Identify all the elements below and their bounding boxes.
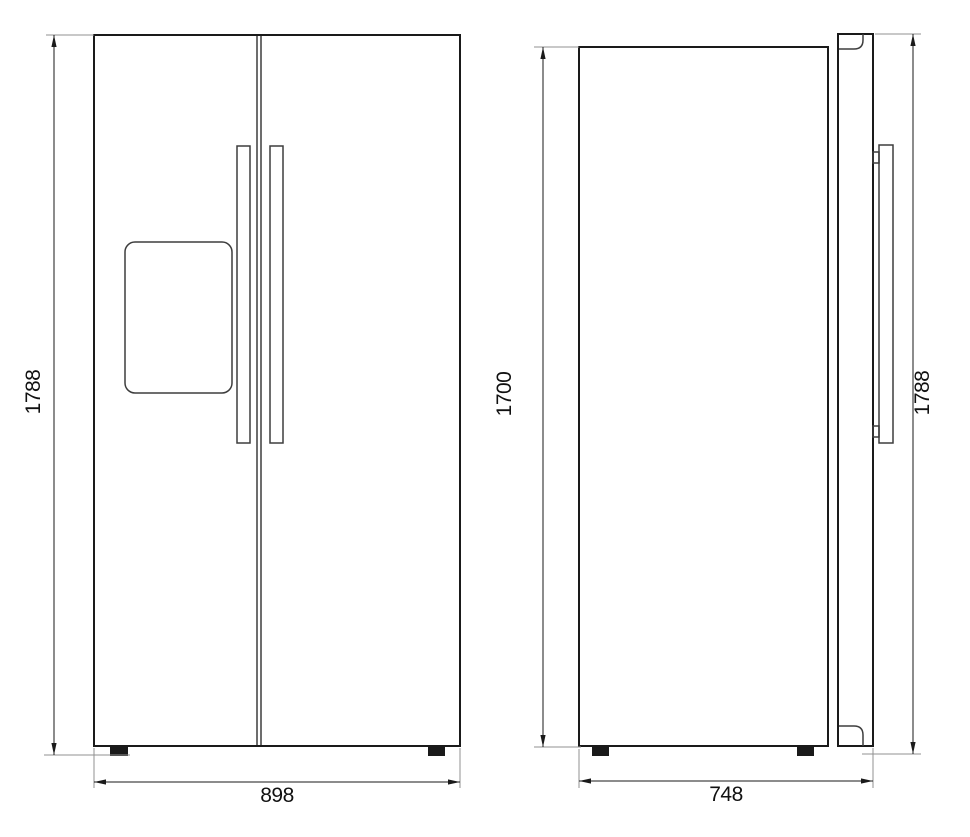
arrowhead-left (579, 778, 591, 783)
front-width-label: 898 (260, 784, 294, 807)
side-cabinet-outline (579, 47, 828, 746)
door-bottom-cap-detail (839, 726, 863, 746)
freezer-door-handle (237, 146, 250, 443)
door-top-cap-detail (839, 34, 863, 49)
front-right-foot (428, 746, 445, 756)
front-height-dimension: 1788 (22, 35, 130, 755)
front-cabinet-outline (94, 35, 460, 746)
side-overall-height-label: 1788 (911, 371, 934, 416)
refrigerator-dimension-drawing: 1788 898 1700 748 (0, 0, 970, 837)
side-view (579, 34, 893, 756)
front-width-dimension: 898 (94, 748, 460, 807)
side-cabinet-height-dimension: 1700 (493, 47, 581, 747)
arrowhead-up (540, 47, 545, 59)
drawing-canvas: 1788 898 1700 748 (0, 0, 970, 837)
side-depth-label: 748 (709, 783, 743, 806)
arrowhead-right (448, 779, 460, 784)
arrowhead-right (861, 778, 873, 783)
water-dispenser-panel (125, 242, 232, 393)
arrowhead-up (51, 35, 56, 47)
fridge-door-handle (270, 146, 283, 443)
arrowhead-up (910, 34, 915, 46)
front-height-label: 1788 (22, 370, 45, 415)
side-depth-dimension: 748 (579, 748, 873, 806)
side-cabinet-height-label: 1700 (493, 372, 516, 417)
arrowhead-down (540, 735, 545, 747)
side-right-foot (797, 746, 814, 756)
arrowhead-down (910, 742, 915, 754)
side-left-foot (592, 746, 609, 756)
arrowhead-down (51, 743, 56, 755)
arrowhead-left (94, 779, 106, 784)
side-door-handle (879, 145, 893, 443)
side-door-outline (838, 34, 873, 746)
front-view (94, 35, 460, 756)
